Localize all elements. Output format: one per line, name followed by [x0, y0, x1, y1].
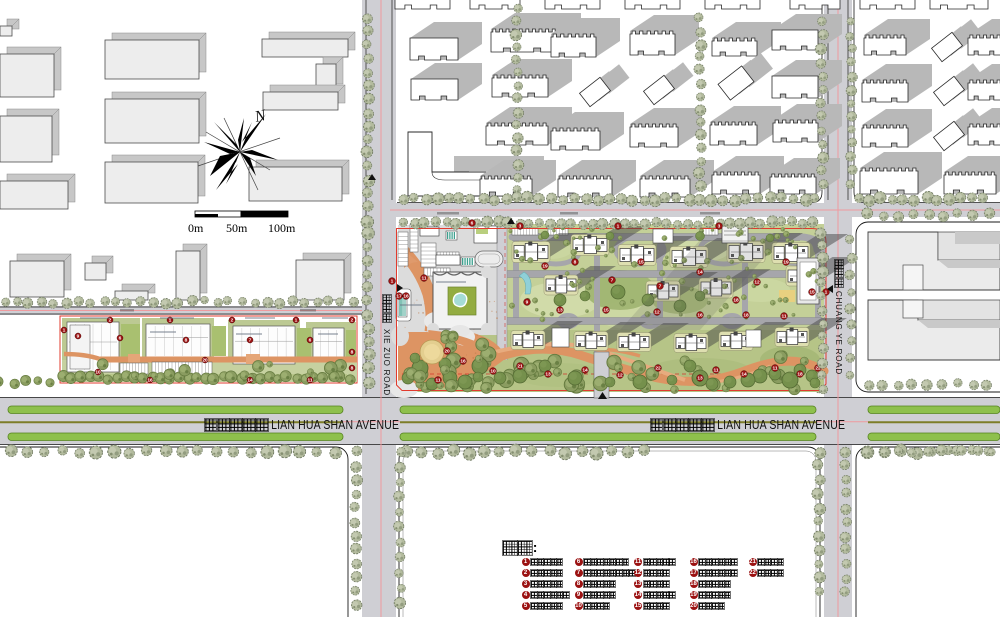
svg-text:10: 10 [95, 370, 101, 376]
svg-text:1: 1 [63, 328, 66, 334]
svg-text:7: 7 [659, 284, 662, 290]
svg-text:0m: 0m [188, 221, 204, 235]
svg-text:19: 19 [542, 264, 548, 270]
svg-text:1: 1 [295, 318, 298, 324]
svg-text:12: 12 [617, 373, 623, 379]
svg-text:13: 13 [697, 376, 703, 382]
svg-text:15: 15 [809, 290, 815, 296]
svg-text:7: 7 [249, 338, 252, 344]
svg-text:8: 8 [351, 366, 354, 372]
svg-text:11: 11 [772, 366, 777, 372]
svg-text:11: 11 [307, 378, 312, 384]
svg-text:16: 16 [460, 359, 466, 365]
svg-text:13: 13 [545, 372, 551, 378]
svg-text:14: 14 [247, 378, 253, 384]
svg-text:100m: 100m [268, 221, 296, 235]
svg-text:18: 18 [733, 298, 739, 304]
svg-text:12: 12 [754, 280, 760, 286]
svg-text:10: 10 [490, 369, 496, 375]
svg-text:18: 18 [797, 372, 803, 378]
svg-text:15: 15 [603, 308, 609, 314]
svg-text:9: 9 [77, 334, 80, 340]
svg-text:8: 8 [185, 338, 188, 344]
svg-text:6: 6 [309, 338, 312, 344]
svg-text:7: 7 [611, 278, 614, 284]
svg-text:14: 14 [697, 270, 703, 276]
svg-text:16: 16 [697, 313, 703, 319]
svg-text:18: 18 [743, 313, 749, 319]
svg-text:11: 11 [781, 314, 786, 320]
svg-text:17: 17 [396, 294, 402, 300]
svg-text:14: 14 [741, 372, 747, 378]
svg-text:50m: 50m [226, 221, 248, 235]
svg-text:2: 2 [231, 318, 234, 324]
svg-text:3: 3 [519, 224, 522, 230]
svg-text:20: 20 [444, 349, 450, 355]
svg-text:12: 12 [654, 310, 660, 316]
svg-text:22: 22 [655, 366, 661, 372]
svg-text:19: 19 [783, 260, 789, 266]
svg-text:6: 6 [471, 221, 474, 227]
svg-text:20: 20 [202, 358, 208, 364]
svg-text:11: 11 [713, 368, 718, 374]
svg-text:21: 21 [517, 364, 523, 370]
svg-text:9: 9 [526, 300, 529, 306]
svg-text:11: 11 [421, 276, 426, 282]
svg-text:16: 16 [403, 294, 409, 300]
svg-text:3: 3 [718, 224, 721, 230]
svg-text:1: 1 [617, 224, 620, 230]
svg-text:2: 2 [351, 318, 354, 324]
svg-text:16: 16 [147, 378, 153, 384]
svg-text:11: 11 [435, 378, 440, 384]
svg-text:15: 15 [638, 260, 644, 266]
svg-text:8: 8 [574, 260, 577, 266]
svg-text:6: 6 [119, 336, 122, 342]
svg-text:13: 13 [557, 308, 563, 314]
svg-text:14: 14 [582, 368, 588, 374]
svg-text:8: 8 [351, 350, 354, 356]
svg-text:1: 1 [391, 279, 394, 285]
